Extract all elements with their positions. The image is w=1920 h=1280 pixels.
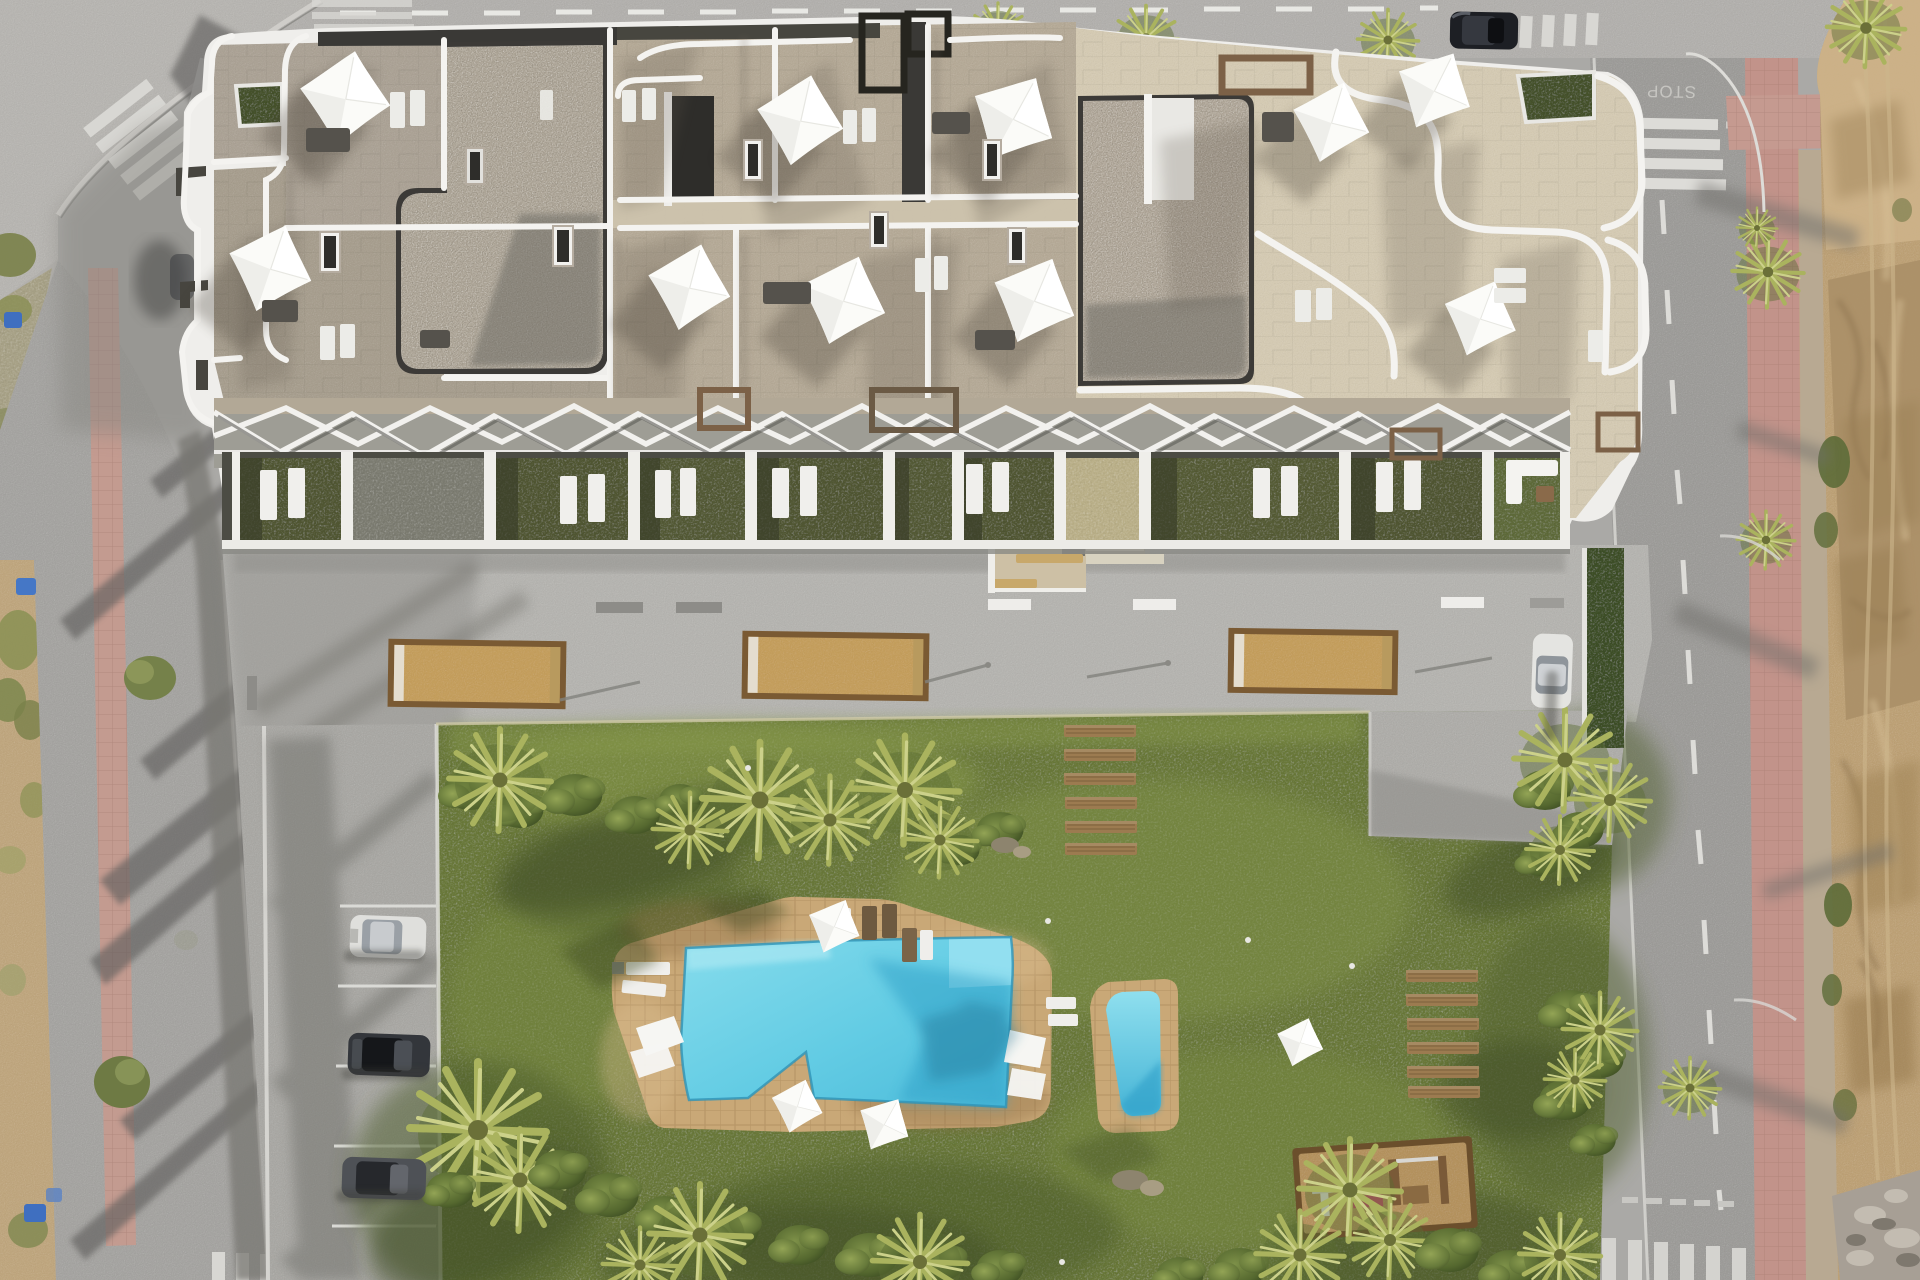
svg-text:STOP: STOP bbox=[1646, 81, 1696, 101]
